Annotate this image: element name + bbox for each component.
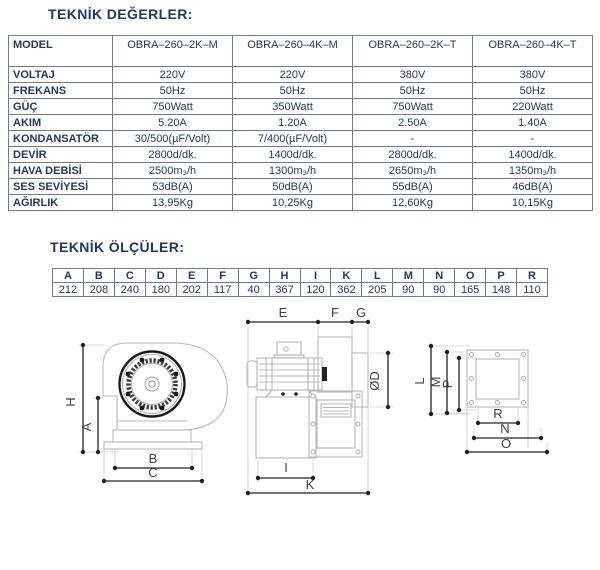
spec-cell: 2800d/dk.: [113, 147, 233, 163]
spec-cell: 30/500(µF/Volt): [113, 131, 233, 147]
fan-housing-front: [256, 337, 368, 458]
spec-row: KONDANSATÖR 30/500(µF/Volt) 7/400(µF/Vol…: [9, 131, 593, 147]
dim-h: H: [63, 343, 85, 454]
spec-table: MODEL OBRA–260–2K–M OBRA–260–4K–M OBRA–2…: [8, 35, 593, 211]
dim-value: 120: [300, 283, 331, 297]
spec-row: AKIM 5.20A 1.20A 2.50A 1.40A: [9, 115, 593, 131]
spec-cell: 1350m₃/h: [473, 163, 593, 179]
drawing-fan-front-view: E F G: [246, 305, 393, 496]
spec-cell: -: [353, 131, 473, 147]
spec-cell: 2.50A: [353, 115, 473, 131]
dim-value: 205: [362, 283, 393, 297]
dim-label-b: B: [149, 451, 158, 466]
spec-cell: 50Hz: [473, 83, 593, 99]
spec-cell: 2650m₃/h: [353, 163, 473, 179]
dimension-letter-row: A B C D E F G H I K L M N O P R: [53, 269, 548, 283]
dim-letter: H: [269, 269, 300, 283]
dim-label-f: F: [331, 305, 339, 320]
dim-label-n: N: [500, 421, 509, 436]
spec-row-label: DEVİR: [9, 147, 113, 163]
dim-o: O: [465, 436, 549, 454]
spec-row: AĞIRLIK 13,95Kg 10,25Kg 12,60Kg 10,15Kg: [9, 195, 593, 211]
dim-letter: C: [114, 269, 145, 283]
spec-col-header: OBRA–260–2K–T: [353, 36, 473, 67]
fan-inlet-bolts: [126, 358, 179, 411]
dim-value: 240: [114, 283, 145, 297]
spec-cell: 10,15Kg: [473, 195, 593, 211]
spec-col-header: MODEL: [9, 36, 113, 67]
dim-e-f-g: E F G: [246, 305, 370, 324]
spec-cell: 46dB(A): [473, 179, 593, 195]
spec-cell: 1300m₃/h: [233, 163, 353, 179]
dim-value: 110: [517, 283, 548, 297]
spec-cell: 220Watt: [473, 99, 593, 115]
dim-value: 165: [455, 283, 486, 297]
dim-letter: I: [300, 269, 331, 283]
spec-cell: 5.20A: [113, 115, 233, 131]
dim-value: 212: [53, 283, 84, 297]
dim-letter: B: [83, 269, 114, 283]
dim-letter: L: [362, 269, 393, 283]
spec-cell: 380V: [473, 67, 593, 83]
dim-label-p: P: [440, 380, 455, 389]
spec-cell: 750Watt: [113, 99, 233, 115]
spec-col-header: OBRA–260–4K–M: [233, 36, 353, 67]
dim-label-c: C: [148, 465, 157, 480]
dim-r: R: [476, 406, 520, 425]
dim-letter: N: [424, 269, 455, 283]
dim-letter: D: [145, 269, 176, 283]
dim-k: K: [246, 477, 370, 495]
dim-letter: F: [207, 269, 238, 283]
dim-letter: K: [331, 269, 362, 283]
spec-cell: 750Watt: [353, 99, 473, 115]
spec-row-label: KONDANSATÖR: [9, 131, 113, 147]
spec-col-header: OBRA–260–2K–M: [113, 36, 233, 67]
spec-cell: 220V: [113, 67, 233, 83]
spec-row-label: VOLTAJ: [9, 67, 113, 83]
dim-value: 202: [176, 283, 207, 297]
spec-cell: 350Watt: [233, 99, 353, 115]
spec-cell: 13,95Kg: [113, 195, 233, 211]
dim-label-i: I: [284, 460, 288, 475]
dim-letter: G: [238, 269, 269, 283]
spec-row: FREKANS 50Hz 50Hz 50Hz 50Hz: [9, 83, 593, 99]
dim-letter: M: [393, 269, 424, 283]
spec-row: GÜÇ 750Watt 350Watt 750Watt 220Watt: [9, 99, 593, 115]
flange-bolt-holes: [470, 353, 526, 405]
spec-cell: 55dB(A): [353, 179, 473, 195]
spec-row: HAVA DEBİSİ 2500m₃/h 1300m₃/h 2650m₃/h 1…: [9, 163, 593, 179]
section-title-technical-dimensions: TEKNİK ÖLÇÜLER:: [50, 239, 184, 255]
dim-p: P: [440, 356, 461, 412]
spec-row: SES SEVİYESİ 53dB(A) 50dB(A) 55dB(A) 46d…: [9, 179, 593, 195]
spec-cell: -: [473, 131, 593, 147]
spec-cell: 7/400(µF/Volt): [233, 131, 353, 147]
spec-cell: 1400d/dk.: [473, 147, 593, 163]
dim-value: 90: [424, 283, 455, 297]
dim-a: A: [79, 396, 100, 454]
drawing-outlet-flange-view: L M P R: [412, 344, 549, 455]
section-title-technical-values: TEKNİK DEĞERLER:: [48, 6, 193, 22]
spec-cell: 380V: [353, 67, 473, 83]
dim-label-r: R: [493, 406, 502, 421]
dim-value: 40: [238, 283, 269, 297]
spec-row-label: GÜÇ: [9, 99, 113, 115]
spec-cell: 50dB(A): [233, 179, 353, 195]
motor: [247, 342, 327, 397]
spec-cell: 50Hz: [113, 83, 233, 99]
dim-label-h: H: [63, 397, 78, 406]
spec-header-row: MODEL OBRA–260–2K–M OBRA–260–4K–M OBRA–2…: [9, 36, 593, 67]
spec-row-label: SES SEVİYESİ: [9, 179, 113, 195]
dim-value: 367: [269, 283, 300, 297]
dim-letter: E: [176, 269, 207, 283]
dim-value: 90: [393, 283, 424, 297]
spec-cell: 2800d/dk.: [353, 147, 473, 163]
spec-cell: 2500m₃/h: [113, 163, 233, 179]
spec-row: VOLTAJ 220V 220V 380V 380V: [9, 67, 593, 83]
dim-label-l: L: [412, 377, 427, 384]
dim-label-k: K: [306, 477, 315, 492]
dim-label-g: G: [356, 305, 366, 320]
dim-letter: O: [455, 269, 486, 283]
drawing-fan-side-view: H A B C: [63, 343, 227, 484]
dim-value: 208: [83, 283, 114, 297]
technical-drawings: H A B C: [0, 300, 600, 570]
spec-row: DEVİR 2800d/dk. 1400d/dk. 2800d/dk. 1400…: [9, 147, 593, 163]
dimension-value-row: 212 208 240 180 202 117 40 367 120 362 2…: [53, 283, 548, 297]
dim-label-d: ØD: [367, 371, 382, 391]
motor-shaft-key: [322, 367, 327, 381]
spec-row-label: AKIM: [9, 115, 113, 131]
spec-cell: 1.20A: [233, 115, 353, 131]
dim-d: ØD: [367, 351, 390, 409]
spec-col-header: OBRA–260–4K–T: [473, 36, 593, 67]
dim-value: 362: [331, 283, 362, 297]
spec-cell: 50Hz: [353, 83, 473, 99]
datasheet-page: TEKNİK DEĞERLER: MODEL OBRA–260–2K–M OBR…: [0, 0, 600, 570]
spec-cell: 220V: [233, 67, 353, 83]
spec-cell: 1.40A: [473, 115, 593, 131]
dim-letter: A: [53, 269, 84, 283]
dimension-table: A B C D E F G H I K L M N O P R 212 208 …: [52, 268, 548, 297]
spec-cell: 10,25Kg: [233, 195, 353, 211]
dim-value: 148: [486, 283, 517, 297]
dim-label-o: O: [501, 436, 511, 451]
spec-cell: 12,60Kg: [353, 195, 473, 211]
spec-cell: 50Hz: [233, 83, 353, 99]
spec-cell: 53dB(A): [113, 179, 233, 195]
spec-row-label: AĞIRLIK: [9, 195, 113, 211]
dim-letter: R: [517, 269, 548, 283]
fan-inlet-rings: [120, 352, 185, 417]
dim-value: 117: [207, 283, 238, 297]
spec-row-label: HAVA DEBİSİ: [9, 163, 113, 179]
dim-letter: P: [486, 269, 517, 283]
spec-row-label: FREKANS: [9, 83, 113, 99]
spec-cell: 1400d/dk.: [233, 147, 353, 163]
dim-label-e: E: [279, 305, 288, 320]
dim-value: 180: [145, 283, 176, 297]
dim-label-a: A: [79, 422, 94, 431]
